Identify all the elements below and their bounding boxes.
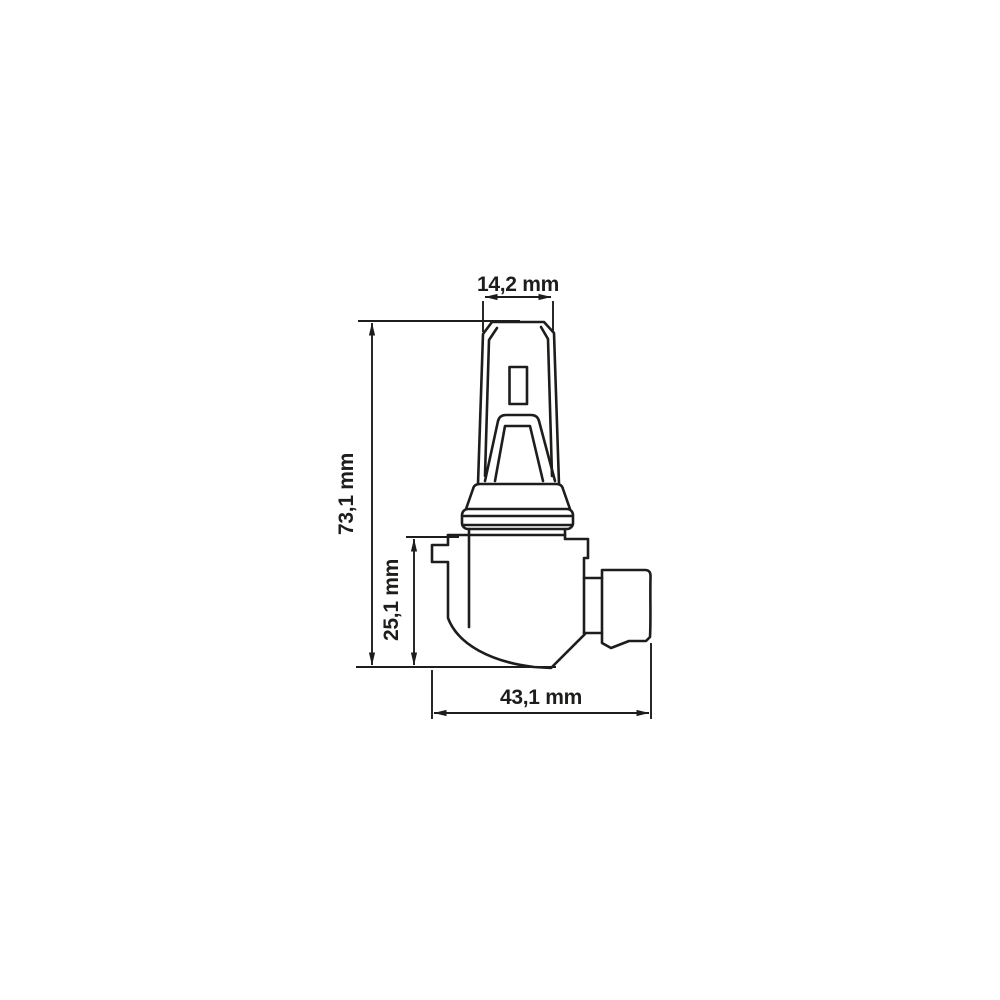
dimension-label-top-width: 14,2 mm xyxy=(477,273,559,296)
connector-block-outline xyxy=(602,570,651,648)
collar-outline xyxy=(466,484,570,509)
dimension-annotations: 14,2 mm 73,1 mm 25,1 mm 43,1 mm xyxy=(335,273,651,719)
dimension-total-height: 73,1 mm xyxy=(335,321,556,667)
reflector-inner-outline xyxy=(495,426,543,481)
technical-drawing-canvas: 14,2 mm 73,1 mm 25,1 mm 43,1 mm xyxy=(0,0,1000,1000)
dimension-label-base-height: 25,1 mm xyxy=(380,559,403,641)
dimension-base-width: 43,1 mm xyxy=(432,643,651,719)
led-chip-window xyxy=(510,367,528,404)
led-bulb-dimension-drawing: 14,2 mm 73,1 mm 25,1 mm 43,1 mm xyxy=(0,0,1000,1000)
dimension-label-total-height: 73,1 mm xyxy=(335,453,358,535)
bulb-part-drawing xyxy=(432,322,651,668)
base-right-profile xyxy=(565,529,588,633)
base-left-profile xyxy=(432,535,585,668)
dimension-label-base-width: 43,1 mm xyxy=(500,686,582,709)
